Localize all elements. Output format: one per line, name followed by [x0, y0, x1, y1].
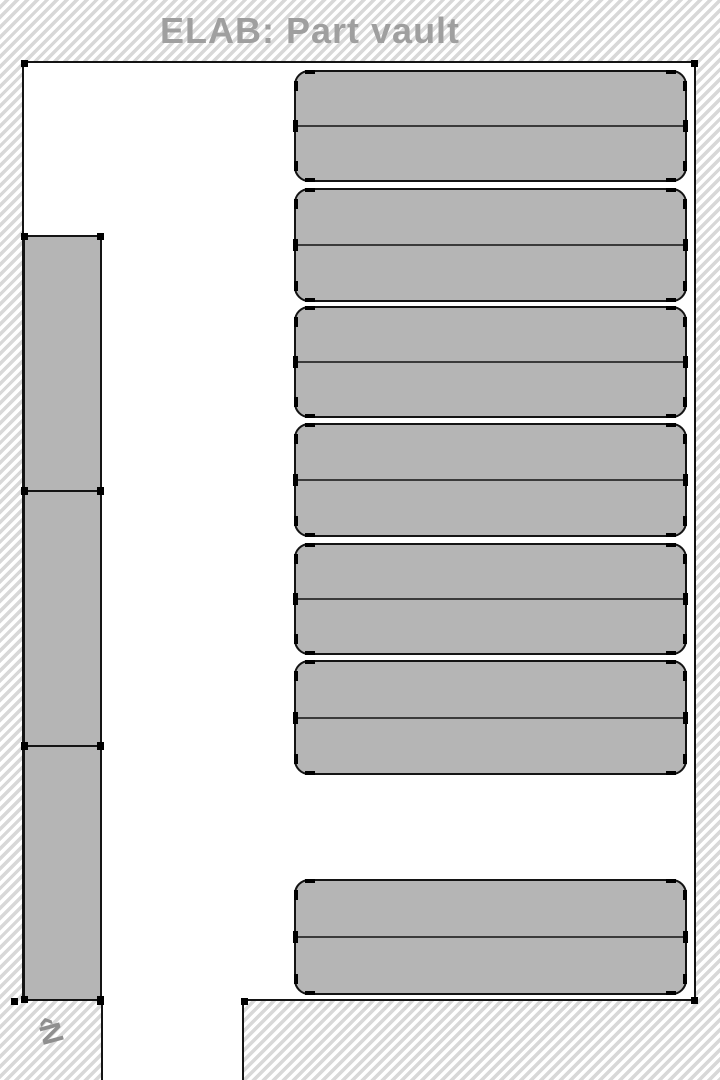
connection-handle [683, 890, 687, 900]
connection-handle [293, 593, 298, 605]
wall-junction-handle [97, 998, 104, 1005]
connection-handle [666, 414, 676, 418]
connection-handle [305, 70, 315, 74]
wall-junction-handle [691, 60, 698, 67]
connection-handle [293, 120, 298, 132]
connection-handle [305, 651, 315, 655]
connection-handle [683, 593, 688, 605]
connection-handle [305, 188, 315, 192]
rack-shelf-divider [296, 479, 685, 481]
connection-handle [305, 306, 315, 310]
connection-handle [294, 671, 298, 681]
connection-handle [683, 754, 687, 764]
connection-handle [305, 414, 315, 418]
connection-handle [294, 554, 298, 564]
connection-handle [683, 434, 687, 444]
connection-handle [666, 660, 676, 664]
rack-shelf-divider [296, 936, 685, 938]
connection-handle [305, 178, 315, 182]
corner-handle [21, 233, 28, 240]
connection-handle [294, 161, 298, 171]
connection-handle [305, 771, 315, 775]
rack-shelf-divider [296, 598, 685, 600]
connection-handle [294, 516, 298, 526]
connection-handle [666, 771, 676, 775]
connection-handle [293, 474, 298, 486]
connection-handle [666, 991, 676, 995]
connection-handle [294, 199, 298, 209]
connection-handle [305, 879, 315, 883]
wall-junction-handle [691, 997, 698, 1004]
storage-rack-4[interactable] [294, 423, 687, 537]
connection-handle [683, 120, 688, 132]
connection-handle [293, 239, 298, 251]
corner-handle [97, 743, 104, 750]
connection-handle [683, 161, 687, 171]
rack-shelf-divider [296, 717, 685, 719]
connection-handle [294, 890, 298, 900]
rack-shelf-divider [296, 125, 685, 127]
connection-handle [683, 671, 687, 681]
storage-rack-1[interactable] [294, 70, 687, 182]
connection-handle [294, 397, 298, 407]
connection-handle [294, 317, 298, 327]
connection-handle [683, 356, 688, 368]
connection-handle [683, 474, 688, 486]
rack-shelf-divider [296, 244, 685, 246]
connection-handle [666, 298, 676, 302]
rack-shelf-divider [296, 361, 685, 363]
connection-handle [294, 81, 298, 91]
connection-handle [305, 543, 315, 547]
connection-handle [666, 70, 676, 74]
connection-handle [666, 651, 676, 655]
connection-handle [305, 660, 315, 664]
page-title: ELAB: Part vault [0, 10, 720, 52]
storage-rack-3[interactable] [294, 306, 687, 418]
corner-handle [21, 743, 28, 750]
connection-handle [666, 543, 676, 547]
connection-handle [293, 712, 298, 724]
doorway-opening [101, 999, 244, 1080]
connection-handle [683, 554, 687, 564]
connection-handle [305, 991, 315, 995]
corner-handle [97, 488, 104, 495]
connection-handle [683, 81, 687, 91]
connection-handle [666, 423, 676, 427]
connection-handle [683, 281, 687, 291]
connection-handle [666, 188, 676, 192]
storage-rack-5[interactable] [294, 543, 687, 655]
connection-handle [666, 533, 676, 537]
north-arrow-icon: ‹N [18, 998, 79, 1059]
corner-handle [21, 996, 28, 1003]
connection-handle [293, 356, 298, 368]
corner-handle [21, 488, 28, 495]
wall-junction-handle [21, 60, 28, 67]
connection-handle [666, 178, 676, 182]
storage-rack-7[interactable] [294, 879, 687, 995]
connection-handle [294, 281, 298, 291]
connection-handle [294, 634, 298, 644]
connection-handle [294, 974, 298, 984]
wall-junction-handle [241, 998, 248, 1005]
connection-handle [305, 423, 315, 427]
connection-handle [683, 199, 687, 209]
connection-handle [666, 306, 676, 310]
connection-handle [683, 634, 687, 644]
corner-handle [97, 233, 104, 240]
wall-unit-2[interactable] [23, 490, 102, 747]
wall-junction-handle [11, 998, 18, 1005]
connection-handle [683, 239, 688, 251]
connection-handle [683, 397, 687, 407]
connection-handle [683, 931, 688, 943]
connection-handle [683, 974, 687, 984]
floorplan-canvas: ELAB: Part vault ‹N [0, 0, 720, 1080]
connection-handle [294, 434, 298, 444]
connection-handle [305, 533, 315, 537]
connection-handle [666, 879, 676, 883]
connection-handle [683, 712, 688, 724]
wall-unit-3[interactable] [23, 745, 102, 1001]
connection-handle [683, 516, 687, 526]
storage-rack-6[interactable] [294, 660, 687, 775]
connection-handle [305, 298, 315, 302]
connection-handle [293, 931, 298, 943]
storage-rack-2[interactable] [294, 188, 687, 302]
connection-handle [294, 754, 298, 764]
wall-unit-1[interactable] [23, 235, 102, 492]
connection-handle [683, 317, 687, 327]
